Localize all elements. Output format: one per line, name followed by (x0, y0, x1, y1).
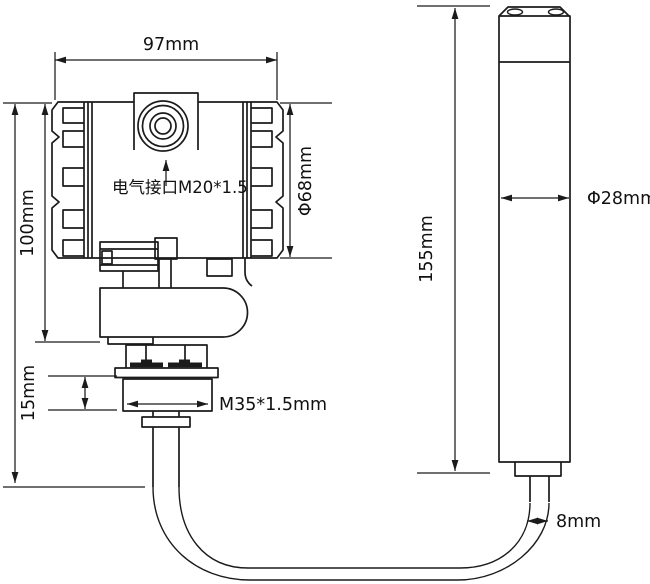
probe-bottom-steps (515, 462, 561, 502)
dimension-drawing: 97mm 100mm 15mm Φ68mm 电气接口M20*1.5 (0, 0, 650, 584)
dim-cable-diameter-label: 8mm (556, 512, 601, 532)
dim-nut-height-label: 15mm (19, 365, 39, 421)
dim-overall-extensions (3, 103, 145, 487)
dim-probe-diameter: Φ28mm (501, 189, 650, 209)
transmitter-view (52, 93, 283, 487)
cable-entry-port-ring1 (143, 106, 184, 147)
cable-entry-port-outer (138, 101, 188, 151)
process-connection-body (100, 288, 247, 344)
electrical-port-label: 电气接口M20*1.5 (112, 178, 248, 197)
dim-nut-height: 15mm (19, 365, 117, 421)
dim-overall-left (3, 103, 145, 487)
dim-probe-diameter-label: Φ28mm (587, 189, 650, 209)
dim-body-width: 97mm (55, 35, 277, 100)
cable-entry-port-ring2 (150, 113, 176, 139)
cap-hole-right (549, 9, 564, 15)
label-electrical-port: 电气接口M20*1.5 (112, 160, 248, 197)
cap-hole-left (508, 9, 523, 15)
connection-cable (153, 487, 549, 580)
cable-inner-edge (179, 487, 530, 568)
probe-body (499, 16, 570, 462)
dim-nut-height-extensions (48, 376, 117, 410)
dim-probe-length: 155mm (417, 6, 490, 473)
gasket-bars (130, 360, 202, 368)
cable-entry-port-ring3 (155, 118, 171, 134)
dim-body-diameter: Φ68mm (280, 103, 332, 258)
thread-nut (123, 379, 212, 411)
mounting-bracket (100, 238, 252, 288)
cooling-fins-right (247, 102, 283, 258)
dim-body-height-label: 100mm (18, 189, 38, 257)
dim-cable-diameter: 8mm (527, 512, 601, 532)
cooling-fins-left (52, 102, 88, 258)
dimension-drawing-canvas: 97mm 100mm 15mm Φ68mm 电气接口M20*1.5 (0, 0, 650, 584)
dim-thread-label: M35*1.5mm (219, 395, 327, 415)
mounting-flange (115, 368, 218, 378)
tube-collar (142, 417, 190, 427)
dim-body-width-label: 97mm (143, 35, 199, 55)
probe-view (499, 7, 570, 502)
dim-body-diameter-label: Φ68mm (296, 146, 316, 216)
dim-thread: M35*1.5mm (127, 395, 327, 415)
dim-probe-length-label: 155mm (417, 215, 437, 283)
cable-outer-edge (153, 487, 549, 580)
